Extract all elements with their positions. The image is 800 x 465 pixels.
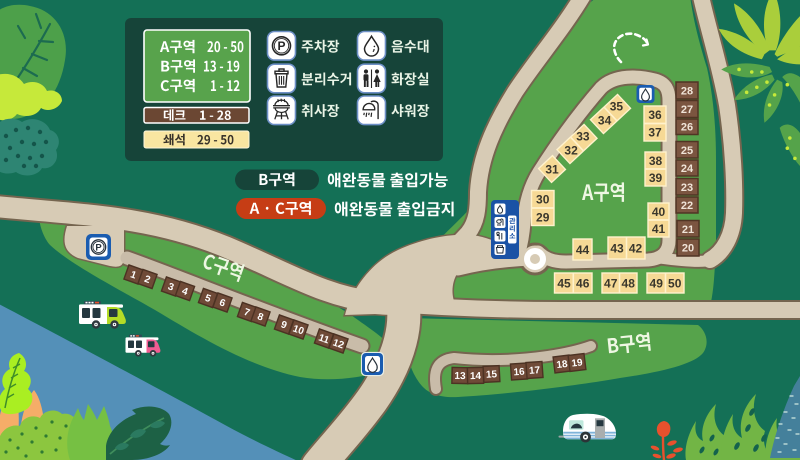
svg-text:23: 23 bbox=[681, 182, 693, 194]
svg-text:49: 49 bbox=[650, 277, 664, 291]
svg-text:27: 27 bbox=[681, 104, 693, 116]
svg-text:46: 46 bbox=[576, 277, 590, 291]
svg-text:40: 40 bbox=[652, 205, 666, 219]
svg-text:39: 39 bbox=[649, 171, 663, 185]
svg-text:32: 32 bbox=[564, 143, 578, 157]
svg-text:24: 24 bbox=[681, 163, 694, 175]
svg-text:P: P bbox=[277, 39, 285, 53]
svg-text:34: 34 bbox=[598, 113, 612, 127]
svg-text:26: 26 bbox=[681, 122, 693, 134]
svg-text:15: 15 bbox=[486, 369, 498, 381]
svg-text:P: P bbox=[95, 243, 102, 254]
svg-text:44: 44 bbox=[576, 243, 590, 257]
svg-text:25: 25 bbox=[681, 145, 693, 157]
svg-text:14: 14 bbox=[470, 371, 482, 382]
svg-text:29: 29 bbox=[536, 211, 550, 225]
svg-text:21: 21 bbox=[682, 224, 694, 236]
svg-text:48: 48 bbox=[622, 277, 636, 291]
svg-text:19: 19 bbox=[571, 357, 584, 369]
svg-text:13: 13 bbox=[454, 371, 466, 382]
svg-text:45: 45 bbox=[557, 277, 571, 291]
svg-text:16: 16 bbox=[513, 367, 525, 379]
svg-text:47: 47 bbox=[604, 277, 618, 291]
svg-text:35: 35 bbox=[610, 100, 624, 114]
svg-text:22: 22 bbox=[681, 200, 693, 212]
svg-text:38: 38 bbox=[649, 154, 663, 168]
svg-text:33: 33 bbox=[576, 130, 590, 144]
svg-text:41: 41 bbox=[652, 222, 666, 236]
svg-text:28: 28 bbox=[681, 86, 693, 98]
svg-text:43: 43 bbox=[610, 242, 624, 256]
svg-text:36: 36 bbox=[648, 108, 662, 122]
svg-text:31: 31 bbox=[545, 163, 559, 177]
svg-text:20: 20 bbox=[682, 243, 694, 255]
svg-text:18: 18 bbox=[556, 359, 569, 371]
svg-text:50: 50 bbox=[668, 277, 682, 291]
svg-text:17: 17 bbox=[529, 365, 541, 377]
svg-text:37: 37 bbox=[648, 126, 662, 140]
svg-text:42: 42 bbox=[629, 242, 643, 256]
svg-text:30: 30 bbox=[536, 193, 550, 207]
